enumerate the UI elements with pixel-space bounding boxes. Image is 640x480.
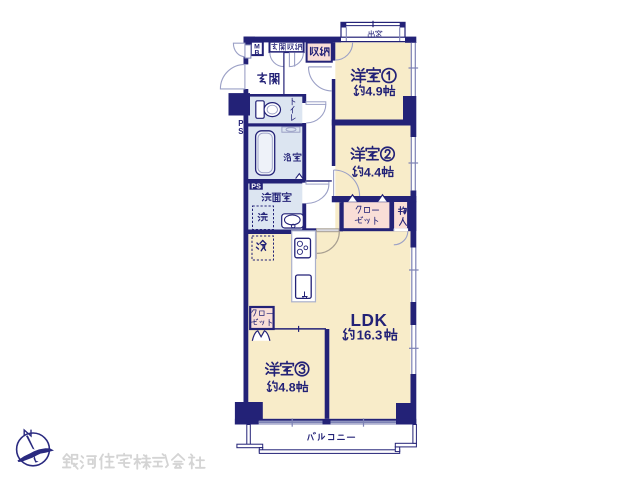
svg-text:4.8: 4.8	[278, 380, 295, 394]
svg-text:4.4: 4.4	[364, 165, 381, 179]
svg-text:4.9: 4.9	[365, 84, 382, 98]
svg-text:PS: PS	[251, 181, 261, 190]
svg-text:B: B	[254, 50, 259, 57]
svg-text:S: S	[238, 127, 243, 136]
svg-text:16.3: 16.3	[357, 328, 383, 343]
